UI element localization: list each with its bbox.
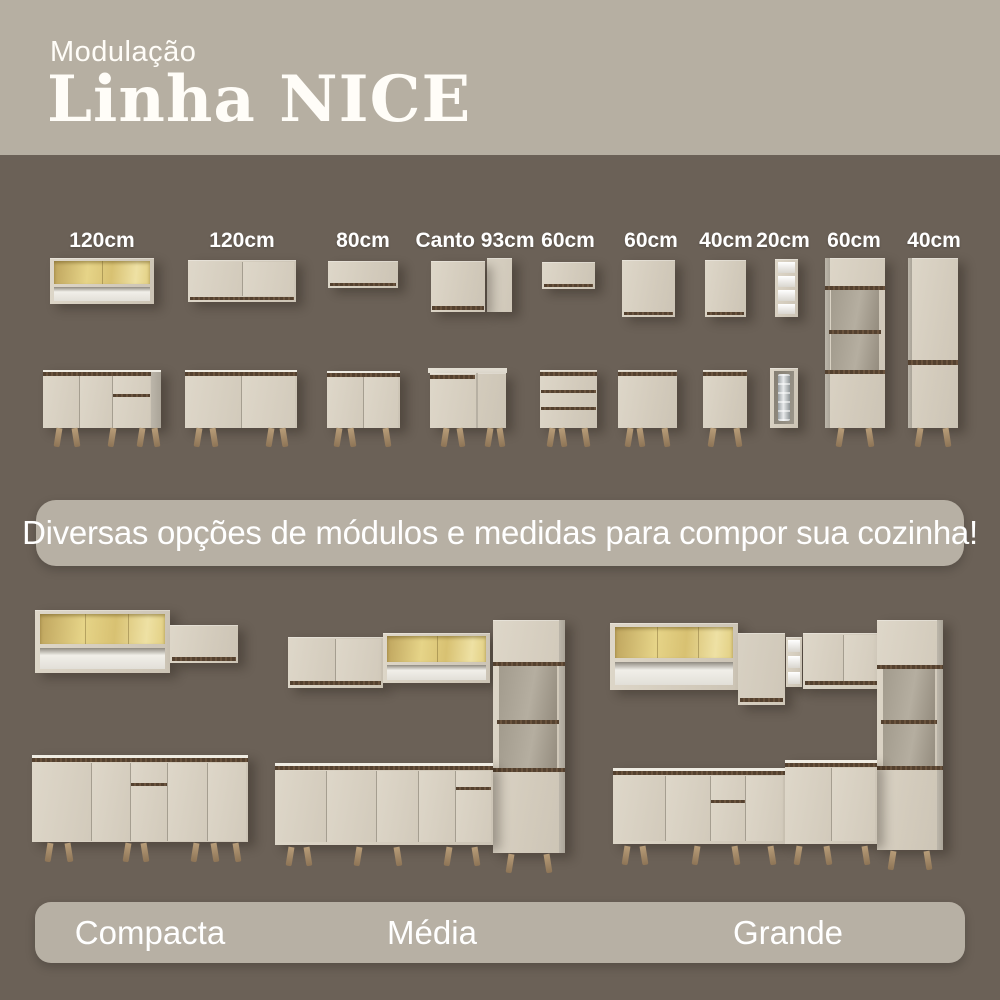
cabinet-leg	[582, 428, 591, 448]
open-shelf-unit-20	[775, 259, 798, 317]
cabinet-body	[618, 370, 677, 428]
glass-doors	[615, 627, 733, 658]
door-pair	[290, 639, 381, 681]
wood-trim	[541, 407, 596, 410]
cabinet-leg	[943, 428, 952, 448]
cabinet-leg	[108, 428, 117, 448]
product-sheet: Modulação Linha NICE 120cm 120cm 80cm Ca…	[0, 0, 1000, 1000]
open-niche	[499, 666, 557, 720]
module-label-60-b: 60cm	[624, 229, 678, 253]
drawer-column	[113, 376, 150, 428]
cabinet-leg	[394, 847, 403, 867]
cabinet-leg	[383, 428, 392, 448]
module-label-canto-93: Canto 93cm	[415, 229, 534, 253]
module-label-40-tall: 40cm	[907, 229, 961, 253]
door-panel	[242, 376, 296, 428]
open-niche	[883, 669, 935, 720]
door-panel	[329, 377, 363, 428]
wood-trim	[703, 372, 747, 376]
wall-cabinet-corner-93	[431, 258, 512, 318]
door-panel	[34, 763, 91, 841]
wood-trim	[908, 360, 958, 365]
cabinet-leg	[286, 847, 295, 867]
door-panel	[290, 639, 335, 681]
wood-trim	[32, 758, 248, 762]
cabinet-leg	[824, 846, 833, 866]
module-label-40-a: 40cm	[699, 229, 753, 253]
cabinet-leg	[233, 843, 242, 863]
size-label-bar: Compacta Média Grande	[35, 902, 965, 963]
wall-cabinet-80	[328, 261, 398, 288]
open-niche	[831, 334, 879, 370]
wood-trim	[190, 297, 294, 300]
wood-trim	[544, 284, 593, 287]
wall-cabinet-120-glass	[50, 258, 154, 304]
open-shelf	[615, 662, 733, 685]
cabinet-leg	[472, 847, 481, 867]
kitchen-media	[275, 600, 605, 892]
door-panel	[208, 763, 246, 841]
cabinet-leg	[280, 428, 289, 448]
base-cabinet-run	[275, 763, 493, 866]
wall-cabinet-glass	[35, 610, 170, 673]
wood-trim	[877, 766, 943, 770]
glass-divider	[657, 627, 658, 658]
cabinet-leg	[210, 428, 219, 448]
cabinet-leg	[559, 428, 568, 448]
kitchen-label-compacta: Compacta	[75, 914, 225, 952]
open-niche	[883, 724, 935, 766]
door-panel	[844, 635, 882, 681]
wall-cabinet-60-low	[542, 262, 595, 289]
wood-trim	[805, 681, 881, 685]
bottle-rack-unit-20	[770, 368, 798, 428]
wall-cabinet-pair	[803, 633, 883, 689]
cubby	[788, 656, 800, 668]
door-panel	[705, 260, 746, 317]
cabinet-leg	[304, 847, 313, 867]
door-panel	[92, 763, 130, 841]
wood-trim	[275, 766, 493, 770]
cabinet-leg	[457, 428, 466, 448]
door-panel	[80, 376, 112, 428]
wood-trim	[456, 787, 491, 790]
banner-text: Diversas opções de módulos e medidas par…	[22, 514, 978, 552]
glass-divider	[698, 627, 699, 658]
wall-cabinet-pair	[288, 637, 383, 688]
door-panel	[187, 376, 241, 428]
glass-divider	[102, 261, 103, 284]
cabinet-leg	[662, 428, 671, 448]
tall-cabinet-60-oven	[825, 258, 885, 447]
base-cabinet-run	[32, 755, 248, 862]
door-panel	[243, 262, 295, 296]
cabinet-leg	[866, 428, 875, 448]
side-panel	[151, 372, 161, 428]
cabinet-leg	[497, 428, 506, 448]
door-panel	[666, 776, 710, 841]
cabinet-leg	[637, 428, 646, 448]
cabinet-leg	[692, 846, 701, 866]
open-niche	[499, 724, 557, 768]
door-panel	[622, 260, 675, 317]
module-label-120-glass: 120cm	[69, 229, 134, 253]
wood-trim	[432, 306, 484, 310]
drawer-column	[131, 763, 167, 841]
base-cabinet-80	[327, 371, 400, 447]
base-cabinet-run-right	[785, 760, 877, 865]
door-panel	[805, 635, 843, 681]
tall-cabinet-40	[908, 258, 958, 447]
cabinet-leg	[334, 428, 343, 448]
corner-side-panel	[487, 258, 512, 312]
cabinet-body	[540, 370, 597, 428]
wood-trim	[290, 681, 381, 685]
door-panel	[44, 376, 79, 428]
wood-trim	[172, 657, 236, 661]
door-panel	[336, 639, 381, 681]
glass-doors	[54, 261, 150, 284]
cabinet-leg	[137, 428, 146, 448]
wall-cabinet-glass	[610, 623, 738, 690]
door-panel	[327, 771, 376, 842]
wood-trim	[707, 312, 744, 315]
cabinet-leg	[141, 843, 150, 863]
wood-trim	[711, 800, 745, 803]
wood-trim	[541, 390, 596, 393]
wood-trim	[618, 372, 677, 376]
cabinet-leg	[794, 846, 803, 866]
bottle-rack	[778, 374, 790, 421]
cabinet-leg	[72, 428, 81, 448]
glass-divider	[437, 636, 438, 662]
cabinet-leg	[45, 843, 54, 863]
module-label-120: 120cm	[209, 229, 274, 253]
cubby	[788, 672, 800, 684]
base-cabinet-60-drawers	[540, 370, 597, 447]
open-shelf	[54, 287, 150, 301]
cabinet-leg	[441, 428, 450, 448]
cabinet-leg	[354, 847, 363, 867]
cabinet-leg	[194, 428, 203, 448]
door-panel	[738, 633, 785, 705]
door-panel	[746, 776, 783, 841]
glass-doors	[387, 636, 486, 662]
door-pair	[329, 377, 398, 428]
door-row	[277, 771, 491, 842]
door-panel	[431, 261, 485, 312]
wall-cabinet	[170, 625, 238, 663]
open-shelf	[387, 665, 486, 680]
cabinet-leg	[888, 851, 897, 871]
kitchen-compacta	[20, 600, 280, 890]
open-shelf-unit	[786, 637, 802, 687]
door-pair	[787, 768, 875, 841]
cabinet-leg	[266, 428, 275, 448]
door-panel	[168, 763, 206, 841]
base-cabinet-run-left	[613, 768, 785, 865]
cubby	[788, 640, 800, 652]
side-panel	[937, 620, 943, 850]
cabinet-leg	[191, 843, 200, 863]
base-cabinet-60	[618, 370, 677, 447]
cabinet-leg	[915, 428, 924, 448]
cabinet-leg	[485, 428, 494, 448]
module-label-80: 80cm	[336, 229, 390, 253]
door-pair	[187, 376, 295, 428]
cabinet-leg	[708, 428, 717, 448]
door-row	[44, 376, 150, 428]
cubby	[778, 290, 795, 301]
side-panel	[559, 620, 565, 853]
door-panel	[277, 771, 326, 842]
base-cabinet-40	[703, 370, 747, 447]
cubby	[778, 262, 795, 273]
tall-tower	[493, 620, 565, 873]
cabinet-leg	[54, 428, 63, 448]
cabinet-leg	[734, 428, 743, 448]
banner: Diversas opções de módulos e medidas par…	[36, 500, 964, 566]
cabinet-body	[703, 370, 747, 428]
cabinet-leg	[65, 843, 74, 863]
door-panel	[190, 262, 242, 296]
base-cabinet-corner-93	[428, 366, 507, 447]
wood-trim	[785, 763, 877, 767]
cabinet-leg	[152, 428, 161, 448]
wall-cabinet-120	[188, 260, 296, 302]
glass-doors	[40, 614, 165, 644]
door-pair	[190, 262, 294, 296]
page-title: Linha NICE	[47, 62, 471, 137]
open-shelf	[40, 648, 165, 669]
open-niche	[831, 290, 879, 330]
drawer-column	[711, 776, 745, 841]
wood-trim	[825, 370, 885, 374]
wall-cabinet-60	[622, 260, 675, 317]
kitchen-label-grande: Grande	[733, 914, 843, 952]
door-row	[34, 763, 246, 841]
cabinet-leg	[625, 428, 634, 448]
wood-trim	[330, 283, 396, 286]
kitchen-grande	[605, 600, 995, 892]
door-panel	[364, 377, 398, 428]
tall-tower	[877, 620, 943, 870]
cabinet-leg	[640, 846, 649, 866]
cabinet-leg	[547, 428, 556, 448]
wood-trim	[131, 783, 167, 786]
wood-trim	[624, 312, 673, 315]
wood-trim	[740, 698, 783, 702]
cabinet-leg	[211, 843, 220, 863]
cabinet-leg	[836, 428, 845, 448]
door-row	[615, 776, 783, 841]
cabinet-leg	[862, 846, 871, 866]
kitchen-label-media: Média	[387, 914, 477, 952]
door-panel	[787, 768, 831, 841]
drawer-column	[456, 771, 491, 842]
wood-trim	[430, 375, 475, 379]
base-cabinet-120-drawer	[43, 370, 161, 447]
cabinet-body	[908, 258, 958, 428]
door-panel	[832, 768, 876, 841]
glass-divider	[85, 614, 86, 644]
cubby	[778, 304, 795, 314]
cabinet-leg	[544, 854, 553, 874]
wood-trim	[493, 768, 565, 772]
cabinet-leg	[924, 851, 933, 871]
header: Modulação Linha NICE	[0, 0, 1000, 155]
side-panel	[908, 258, 912, 428]
wood-trim	[540, 372, 597, 376]
glass-divider	[128, 614, 129, 644]
wood-trim	[113, 394, 150, 397]
cabinet-leg	[732, 846, 741, 866]
wall-cabinet-glass	[383, 633, 490, 683]
cabinet-leg	[348, 428, 357, 448]
module-label-20: 20cm	[756, 229, 810, 253]
cabinet-leg	[123, 843, 132, 863]
side-panel	[825, 258, 830, 428]
door-divider	[476, 373, 478, 428]
base-cabinet-120	[185, 370, 297, 447]
cabinet-leg	[622, 846, 631, 866]
wall-cabinet-40	[705, 260, 746, 317]
door-panel	[615, 776, 665, 841]
wall-cabinet-corner	[738, 633, 785, 705]
cabinet-body	[430, 373, 506, 428]
door-panel	[377, 771, 418, 842]
module-label-60-a: 60cm	[541, 229, 595, 253]
wood-trim	[613, 771, 785, 775]
cabinet-leg	[444, 847, 453, 867]
module-label-60-tall: 60cm	[827, 229, 881, 253]
door-pair	[805, 635, 881, 681]
cabinet-leg	[768, 846, 777, 866]
cubby	[778, 276, 795, 287]
cabinet-leg	[506, 854, 515, 874]
door-panel	[419, 771, 455, 842]
